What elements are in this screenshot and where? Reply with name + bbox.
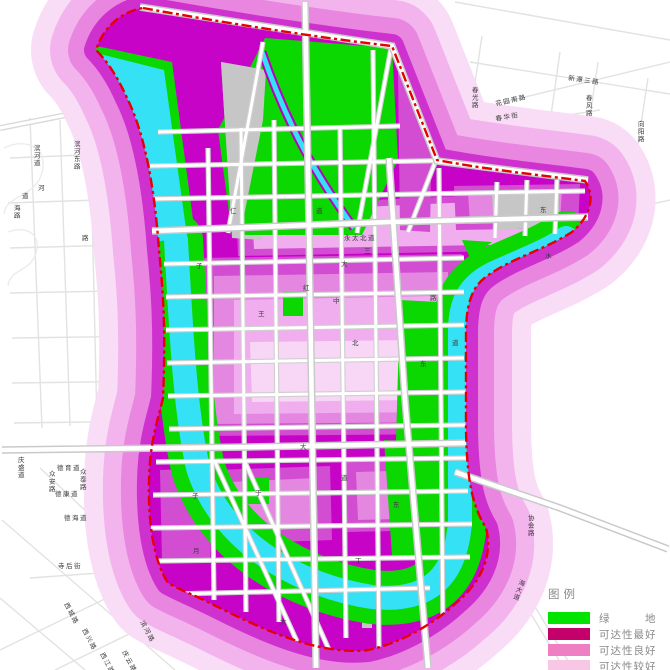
road-label: 东: [393, 500, 401, 509]
road-label: 永太北道: [344, 233, 376, 242]
road-label: 中: [333, 296, 341, 305]
legend-swatch: [548, 612, 590, 624]
legend-label: 可达性较好: [599, 659, 657, 670]
road-label: 德育道: [57, 463, 81, 472]
road-label: 众泰路: [80, 468, 87, 491]
road-label: 西江路: [98, 651, 117, 670]
legend-label: 绿 地: [599, 611, 657, 626]
road-label: 东: [420, 359, 428, 368]
road-label: 月: [193, 547, 201, 555]
road-label: 协会路: [528, 513, 535, 537]
road-label: 子: [192, 492, 200, 500]
legend-swatch: [548, 644, 590, 656]
road-label: 丁: [355, 557, 363, 565]
road-label: 花园南路: [494, 92, 527, 108]
legend-item-accessibility-best: 可达性最好: [548, 628, 657, 640]
road-label: 大: [300, 442, 308, 451]
road-label: 德海道: [64, 513, 88, 522]
road-label: 路: [82, 233, 90, 242]
road-label: 道: [341, 473, 349, 482]
road-label: 东: [540, 205, 548, 214]
road-label: 北: [352, 339, 360, 347]
legend-swatch: [548, 660, 590, 670]
road-label: 水: [545, 251, 553, 260]
map-page: 花园南路新潭三路春光路春华街春风路向阳路滨河道滨河东路海路河道路庆盛道德育道众安…: [0, 0, 670, 670]
map-legend: 图例 绿 地可达性最好可达性良好可达性较好: [548, 586, 657, 670]
road-label: 庆云路: [120, 649, 139, 670]
legend-item-green-space: 绿 地: [548, 612, 657, 624]
road-label: 寺后街: [58, 561, 82, 570]
road-label: 河: [38, 184, 46, 192]
legend-label: 可达性良好: [599, 643, 657, 658]
road-label: 大: [280, 617, 288, 626]
road-label: 西城路: [62, 601, 81, 626]
road-label: 路: [430, 293, 438, 302]
legend-item-accessibility-fair: 可达性较好: [548, 660, 657, 670]
road-label: 众安路: [49, 470, 56, 493]
legend-title: 图例: [548, 586, 657, 602]
road-label: 三: [364, 247, 372, 255]
legend-items: 绿 地可达性最好可达性良好可达性较好: [548, 612, 657, 670]
road-label: 春风路: [586, 93, 593, 117]
road-label: 道: [452, 338, 460, 347]
road-label: 仁: [230, 206, 238, 215]
road-label: 于: [255, 489, 263, 497]
road-label: 王: [258, 310, 266, 318]
legend-swatch: [548, 628, 590, 640]
road-label: 道: [22, 191, 30, 200]
map-canvas: 花园南路新潭三路春光路春华街春风路向阳路滨河道滨河东路海路河道路庆盛道德育道众安…: [0, 0, 670, 670]
road-label: 西兴路: [80, 627, 99, 652]
road-label: 春光路: [472, 85, 479, 109]
road-label: 子: [196, 262, 204, 270]
road-label: 滨河道: [34, 143, 41, 167]
road-label: 滨河东路: [74, 139, 81, 171]
road-label: 向阳路: [638, 119, 645, 143]
road-label: 道: [316, 206, 324, 215]
road-label: 红: [303, 283, 311, 292]
road-label: 海路: [14, 203, 21, 220]
legend-label: 可达性最好: [599, 627, 657, 642]
road-label: 庆盛道: [18, 455, 25, 479]
road-label: 德康道: [55, 489, 79, 498]
legend-item-accessibility-good: 可达性良好: [548, 644, 657, 656]
road-label: 大: [341, 259, 349, 268]
